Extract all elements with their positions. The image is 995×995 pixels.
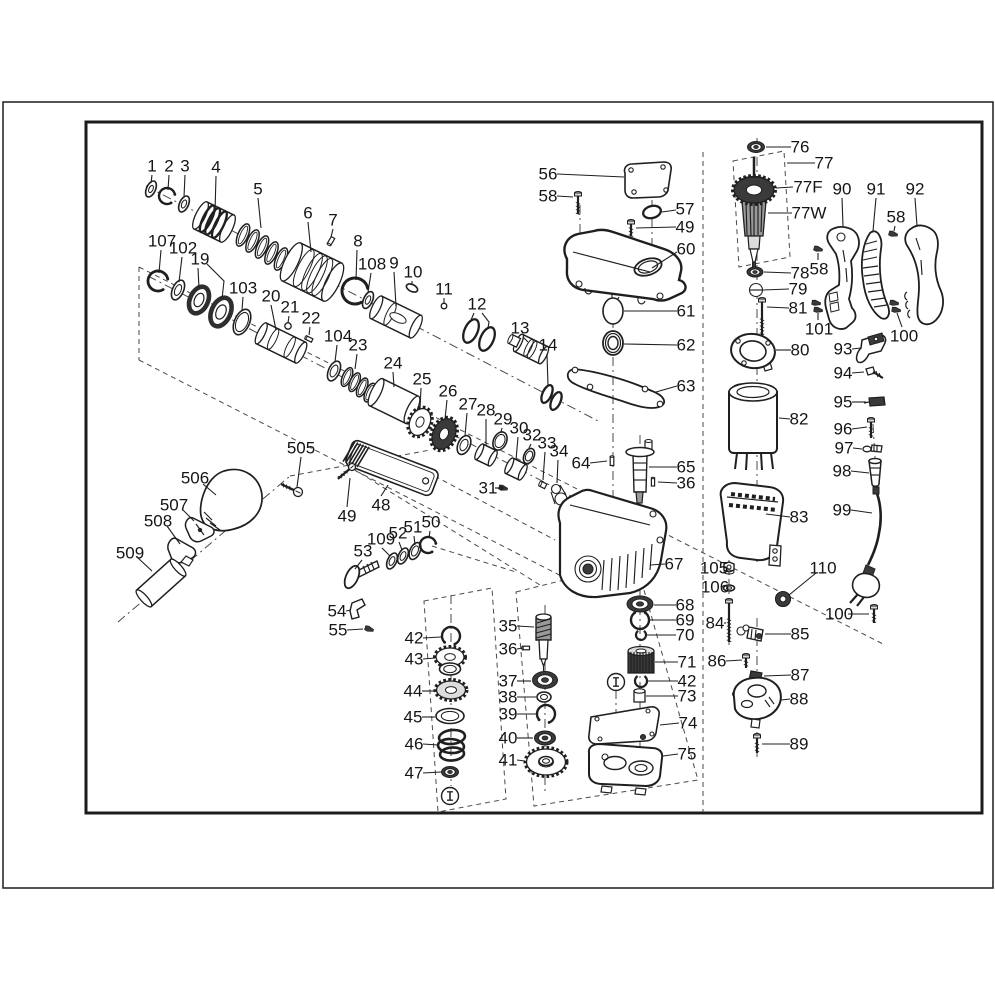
- ball-21: [285, 323, 291, 329]
- fan-77F: [733, 176, 775, 204]
- ring-102: [169, 278, 188, 302]
- connector-95: [864, 397, 885, 406]
- svg-text:108: 108: [358, 255, 386, 274]
- part-label-84: 84: [706, 614, 726, 633]
- part-label-58: 58: [810, 253, 829, 279]
- svg-text:42: 42: [405, 629, 424, 648]
- leader-line: [543, 452, 545, 480]
- part-label-49: 49: [636, 218, 694, 237]
- leader-line: [873, 198, 876, 231]
- part-label-105: 105: [700, 559, 728, 578]
- svg-text:70: 70: [676, 626, 695, 645]
- part-label-9: 9: [389, 254, 398, 307]
- circlip-2: [156, 185, 176, 206]
- handle-cushion-91: [862, 231, 889, 318]
- leader-line: [517, 760, 525, 761]
- svg-text:25: 25: [413, 370, 432, 389]
- leader-line: [852, 427, 867, 429]
- leader-line: [789, 573, 816, 595]
- part-label-95: 95: [834, 393, 866, 412]
- part-label-74: 74: [660, 714, 697, 733]
- parts-diagram-page: 1234567810710219103108910202122111210423…: [0, 0, 995, 995]
- leader-line: [297, 457, 301, 487]
- leader-line: [590, 461, 607, 463]
- leader-line: [851, 471, 869, 473]
- seal-62: [603, 331, 623, 355]
- part-label-77W: 77W: [768, 204, 826, 223]
- svg-text:1: 1: [147, 157, 156, 176]
- pin-36a: [651, 477, 654, 486]
- leader-line: [394, 272, 396, 306]
- leader-line: [258, 198, 261, 228]
- part-label-85: 85: [765, 625, 809, 644]
- washer-52: [395, 546, 410, 565]
- spindle-20: [253, 321, 309, 364]
- svg-text:97: 97: [835, 439, 854, 458]
- svg-text:58: 58: [539, 187, 558, 206]
- leader-line: [309, 327, 310, 335]
- leader-line: [335, 345, 337, 362]
- svg-text:103: 103: [229, 279, 257, 298]
- svg-text:94: 94: [834, 364, 853, 383]
- svg-text:101: 101: [805, 320, 833, 339]
- bearing-78: [747, 267, 763, 277]
- svg-text:90: 90: [833, 180, 852, 199]
- ball-11: [441, 303, 447, 309]
- leader-line: [355, 354, 357, 369]
- svg-text:3: 3: [180, 157, 189, 176]
- leader-line: [660, 723, 679, 725]
- svg-text:45: 45: [404, 708, 423, 727]
- part-label-56: 56: [539, 165, 624, 184]
- leader-line: [764, 272, 791, 273]
- leader-line: [547, 354, 548, 386]
- outer-border: [3, 102, 993, 888]
- leader-line: [423, 658, 435, 659]
- svg-text:61: 61: [677, 302, 696, 321]
- part-label-70: 70: [647, 626, 694, 645]
- svg-text:36: 36: [499, 640, 518, 659]
- svg-text:57: 57: [676, 200, 695, 219]
- part-label-10: 10: [404, 263, 423, 286]
- leader-line: [897, 313, 902, 327]
- leader-line: [915, 198, 917, 226]
- section-mark-I: [442, 788, 459, 805]
- part-label-43: 43: [405, 650, 435, 669]
- svg-text:2: 2: [164, 157, 173, 176]
- part-label-45: 45: [404, 708, 435, 727]
- part-label-88: 88: [781, 690, 808, 709]
- screw-49b: [336, 462, 357, 482]
- svg-text:91: 91: [867, 180, 886, 199]
- screw-100c: [890, 300, 899, 307]
- svg-text:75: 75: [678, 745, 697, 764]
- leader-line: [423, 744, 438, 745]
- leader-line: [763, 289, 789, 290]
- part-label-89: 89: [762, 735, 808, 754]
- leader-line: [557, 174, 624, 177]
- ring-38: [537, 692, 551, 702]
- gasket-wire-63: [568, 367, 664, 408]
- screw-100d: [892, 307, 901, 314]
- part-label-71: 71: [655, 653, 696, 672]
- bolt-94: [866, 367, 883, 378]
- leader-line: [347, 629, 363, 630]
- svg-text:63: 63: [677, 377, 696, 396]
- leader-line: [726, 660, 742, 661]
- grommet-110: [776, 592, 791, 607]
- chuck-cap-4: [190, 200, 239, 244]
- leader-line: [516, 437, 518, 460]
- svg-text:22: 22: [302, 309, 321, 328]
- part-label-1: 1: [147, 157, 156, 184]
- leader-line: [853, 448, 862, 449]
- leader-line: [656, 386, 677, 392]
- svg-text:92: 92: [906, 180, 925, 199]
- lever-54: [350, 599, 365, 619]
- svg-text:86: 86: [708, 652, 727, 671]
- part-label-4: 4: [211, 158, 220, 213]
- part-label-58: 58: [539, 187, 573, 206]
- svg-text:5: 5: [253, 180, 262, 199]
- svg-text:506: 506: [181, 469, 209, 488]
- exploded-parts-diagram: 1234567810710219103108910202122111210423…: [0, 0, 995, 995]
- svg-text:4: 4: [211, 158, 220, 177]
- svg-text:58: 58: [887, 208, 906, 227]
- washer-79: [750, 284, 763, 297]
- leader-line: [624, 344, 677, 345]
- part-label-35: 35: [499, 617, 534, 636]
- leader-line: [179, 257, 182, 282]
- leader-line: [288, 316, 289, 323]
- screw-58c: [813, 245, 823, 252]
- part-label-110: 110: [789, 559, 837, 596]
- terminal-97: [863, 445, 882, 452]
- svg-text:67: 67: [665, 555, 684, 574]
- group-boundary-line: [352, 468, 540, 585]
- part-label-2: 2: [164, 157, 173, 191]
- svg-text:64: 64: [572, 454, 591, 473]
- leader-line: [779, 418, 790, 419]
- svg-text:95: 95: [834, 393, 853, 412]
- part-label-49: 49: [338, 478, 357, 526]
- part-label-94: 94: [834, 364, 864, 383]
- svg-text:93: 93: [834, 340, 853, 359]
- part-label-77F: 77F: [776, 178, 823, 197]
- brush-holder-85: [737, 625, 763, 641]
- bearing-68: [627, 596, 653, 612]
- svg-text:43: 43: [405, 650, 424, 669]
- cap-plate-56: [624, 162, 671, 198]
- part-label-62: 62: [624, 336, 695, 355]
- sleeve-98: [869, 459, 881, 487]
- part-label-27: 27: [459, 395, 478, 437]
- part-label-36: 36: [499, 640, 523, 659]
- part-label-81: 81: [767, 299, 807, 318]
- svg-text:98: 98: [833, 462, 852, 481]
- svg-text:40: 40: [499, 729, 518, 748]
- part-label-31: 31: [479, 479, 505, 498]
- svg-text:62: 62: [677, 336, 696, 355]
- gear-41-hub: [539, 757, 553, 766]
- oring-61: [603, 298, 623, 324]
- leader-line: [184, 175, 185, 197]
- part-label-100: 100: [890, 313, 918, 346]
- part-label-98: 98: [833, 462, 869, 481]
- svg-text:41: 41: [499, 751, 518, 770]
- oring-57: [642, 204, 662, 220]
- leader-line: [198, 268, 199, 288]
- svg-text:74: 74: [679, 714, 698, 733]
- svg-text:13: 13: [511, 319, 530, 338]
- leader-line: [382, 548, 390, 556]
- pin-33: [538, 481, 547, 489]
- svg-text:77W: 77W: [792, 204, 827, 223]
- svg-text:21: 21: [281, 298, 300, 317]
- svg-text:10: 10: [404, 263, 423, 282]
- part-label-509: 509: [116, 544, 152, 572]
- pin-22: [304, 335, 313, 342]
- leader-line: [776, 187, 793, 188]
- svg-text:54: 54: [328, 602, 347, 621]
- svg-text:8: 8: [353, 232, 362, 251]
- svg-text:79: 79: [789, 280, 808, 299]
- svg-text:51: 51: [404, 518, 423, 537]
- leader-line: [852, 372, 864, 373]
- svg-text:73: 73: [678, 687, 697, 706]
- svg-text:100: 100: [890, 327, 918, 346]
- part-label-86: 86: [708, 652, 742, 671]
- leader-line: [636, 227, 676, 228]
- leader-line: [465, 413, 467, 436]
- bearing-plate-80: [729, 331, 777, 371]
- leader-line: [517, 626, 534, 627]
- power-cord-99: [850, 487, 881, 606]
- screw-58b: [888, 230, 898, 237]
- svg-text:35: 35: [499, 617, 518, 636]
- spring-46: [438, 729, 466, 762]
- part-label-42: 42: [405, 629, 441, 648]
- screw-101b: [814, 307, 823, 314]
- part-label-58: 58: [887, 208, 906, 232]
- bearing-47: [442, 767, 459, 778]
- svg-text:46: 46: [405, 735, 424, 754]
- part-label-61: 61: [624, 302, 695, 321]
- svg-text:60: 60: [677, 240, 696, 259]
- part-label-57: 57: [662, 200, 694, 219]
- crank-cover-48: [342, 438, 439, 497]
- bearing-44: [435, 680, 466, 700]
- svg-text:58: 58: [810, 260, 829, 279]
- svg-text:89: 89: [790, 735, 809, 754]
- circlip-70: [636, 631, 646, 640]
- bearing-37: [533, 672, 558, 689]
- leader-line: [767, 307, 789, 308]
- svg-text:34: 34: [550, 442, 569, 461]
- gasket-74: [589, 707, 659, 744]
- crankshaft-65: [626, 440, 654, 504]
- pin-73: [634, 689, 645, 702]
- leader-line: [557, 196, 573, 197]
- part-label-5: 5: [253, 180, 262, 229]
- svg-text:106: 106: [701, 578, 729, 597]
- part-label-505: 505: [287, 439, 315, 488]
- svg-text:85: 85: [791, 625, 810, 644]
- part-label-23: 23: [349, 336, 368, 370]
- svg-text:77F: 77F: [793, 178, 822, 197]
- screw-100b: [871, 605, 878, 624]
- group-boundary-line: [424, 588, 506, 812]
- part-label-90: 90: [833, 180, 852, 227]
- handle-tube-509: [134, 557, 188, 609]
- svg-text:82: 82: [790, 410, 809, 429]
- housing-top-60: [564, 230, 685, 304]
- bearing-40: [535, 731, 556, 745]
- part-label-7: 7: [328, 211, 337, 238]
- part-label-11: 11: [435, 280, 453, 304]
- part-label-21: 21: [281, 298, 300, 324]
- svg-text:20: 20: [262, 287, 281, 306]
- svg-text:11: 11: [435, 280, 453, 299]
- leader-line: [851, 510, 872, 513]
- leader-line: [420, 388, 421, 409]
- svg-text:27: 27: [459, 395, 478, 414]
- leader-line: [529, 444, 531, 448]
- part-label-79: 79: [763, 280, 807, 299]
- end-cap-88: [734, 678, 781, 728]
- leader-line: [894, 226, 895, 231]
- svg-text:6: 6: [303, 204, 312, 223]
- svg-text:44: 44: [404, 682, 423, 701]
- circlip-39: [535, 703, 557, 724]
- screw-55: [364, 625, 374, 633]
- part-label-50: 50: [422, 513, 441, 539]
- part-label-26: 26: [439, 382, 458, 420]
- leader-line: [347, 478, 350, 507]
- handle-cover-92: [905, 225, 943, 324]
- pin-7: [327, 237, 335, 247]
- stator-82: [729, 383, 777, 470]
- leader-line: [331, 229, 333, 237]
- part-label-64: 64: [572, 454, 607, 473]
- svg-text:31: 31: [479, 479, 498, 498]
- leader-line: [399, 542, 402, 550]
- part-label-92: 92: [906, 180, 925, 227]
- leader-line: [658, 482, 677, 483]
- pin-64: [610, 456, 614, 466]
- field-housing-83: [721, 483, 783, 566]
- screw-49a: [628, 220, 635, 237]
- svg-text:26: 26: [439, 382, 458, 401]
- part-label-80: 80: [776, 341, 809, 360]
- gearshaft-35: [536, 614, 551, 671]
- svg-text:80: 80: [791, 341, 810, 360]
- part-label-44: 44: [404, 682, 435, 701]
- washer-3: [176, 194, 191, 213]
- part-label-75: 75: [663, 745, 696, 764]
- svg-text:19: 19: [191, 250, 210, 269]
- screw-89: [754, 734, 761, 754]
- svg-text:39: 39: [499, 705, 518, 724]
- svg-text:24: 24: [384, 354, 403, 373]
- svg-text:55: 55: [329, 621, 348, 640]
- svg-text:83: 83: [790, 508, 809, 527]
- gear-43-skirt: [440, 663, 461, 675]
- part-label-82: 82: [779, 410, 808, 429]
- svg-text:7: 7: [328, 211, 337, 230]
- part-label-100: 100: [825, 605, 869, 624]
- leader-line: [159, 250, 161, 273]
- part-label-3: 3: [180, 157, 189, 198]
- leader-line: [423, 637, 441, 638]
- part-label-106: 106: [701, 578, 729, 597]
- part-label-41: 41: [499, 751, 525, 770]
- svg-text:48: 48: [372, 496, 391, 515]
- part-label-22: 22: [302, 309, 321, 336]
- svg-text:99: 99: [833, 501, 852, 520]
- rotor-gear-71: [628, 647, 654, 674]
- part-label-55: 55: [329, 621, 363, 640]
- part-label-63: 63: [656, 377, 695, 396]
- svg-text:77: 77: [815, 154, 834, 173]
- part-label-99: 99: [833, 501, 872, 520]
- svg-text:88: 88: [790, 690, 809, 709]
- svg-text:84: 84: [706, 614, 725, 633]
- grip-506: [201, 470, 263, 531]
- svg-text:36: 36: [677, 474, 696, 493]
- leader-line: [138, 558, 152, 571]
- washer-45: [436, 709, 464, 724]
- svg-text:71: 71: [678, 653, 697, 672]
- svg-text:56: 56: [539, 165, 558, 184]
- diagram-parts: [134, 142, 943, 805]
- leader-line: [662, 210, 676, 212]
- part-label-96: 96: [834, 420, 867, 439]
- part-label-91: 91: [867, 180, 886, 232]
- circlip-42b: [635, 676, 647, 687]
- svg-text:23: 23: [349, 336, 368, 355]
- bearing-76: [748, 142, 765, 153]
- bolt-505: [279, 480, 304, 498]
- knob-53: [342, 561, 379, 590]
- leader-line: [242, 297, 243, 310]
- svg-text:81: 81: [789, 299, 808, 318]
- svg-text:12: 12: [468, 295, 487, 314]
- leader-line: [842, 198, 843, 226]
- part-label-108: 108: [358, 255, 386, 293]
- svg-text:87: 87: [791, 666, 810, 685]
- svg-text:76: 76: [791, 138, 810, 157]
- svg-text:50: 50: [422, 513, 441, 532]
- section-mark-I: [608, 674, 625, 691]
- leader-line: [482, 313, 489, 328]
- leader-line: [764, 675, 791, 676]
- svg-text:49: 49: [338, 507, 357, 526]
- group-boundary-line: [432, 546, 516, 572]
- housing-67: [558, 490, 666, 597]
- part-label-39: 39: [499, 705, 536, 724]
- part-label-36: 36: [658, 474, 695, 493]
- screw-86: [743, 654, 750, 669]
- screw-101a: [812, 300, 821, 307]
- screw-84: [726, 599, 733, 643]
- leader-line: [381, 485, 388, 496]
- part-label-40: 40: [499, 729, 533, 748]
- leader-line: [423, 772, 441, 773]
- part-label-48: 48: [372, 485, 391, 515]
- svg-text:49: 49: [676, 218, 695, 237]
- part-label-73: 73: [646, 687, 696, 706]
